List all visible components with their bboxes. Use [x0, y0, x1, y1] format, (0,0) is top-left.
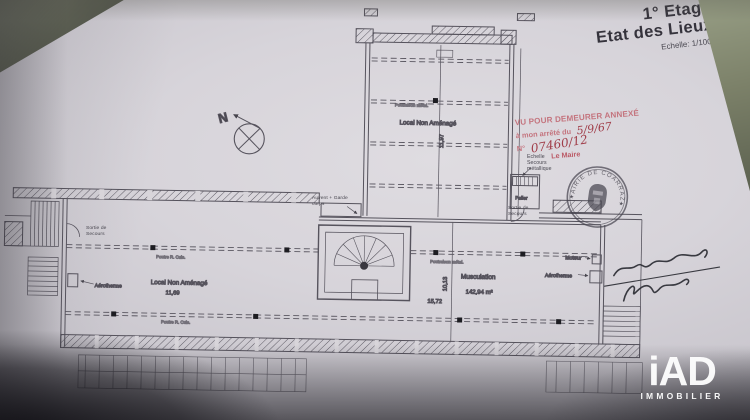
gym-beams: [65, 245, 600, 324]
compass-north-label: N: [217, 109, 230, 126]
main-room-area: 142,94 m²: [466, 290, 493, 296]
floor-plan-photo: N Local Non Aménagé 11,97 Local Non Amén…: [0, 0, 750, 420]
seal-star-left: ★: [569, 193, 575, 201]
central-staircase: [317, 225, 410, 301]
seal-star-right: ★: [618, 200, 624, 208]
heater-left-label: Aérotherme: [95, 283, 122, 289]
exterior-left-stairs: [4, 201, 60, 296]
main-room-width-dim: 15,72: [427, 299, 442, 305]
landing-label: Palier: [515, 195, 528, 201]
exit-left-label: Sortie de Secours: [86, 226, 110, 238]
upper-room-label: Local Non Aménagé: [400, 119, 457, 127]
agency-watermark: iAD IMMOBILIER: [626, 352, 738, 401]
beam-label-1: Poutre R. Cuis.: [156, 254, 185, 260]
left-room-label: Local Non Aménagé: [151, 279, 208, 287]
beam-label-upper: Poutraison métal.: [395, 102, 429, 108]
coat-of-arms-icon: [586, 183, 608, 213]
agency-logo: iAD: [626, 352, 738, 391]
beam-post: [433, 98, 438, 103]
main-room-height-dim: 10,13: [443, 277, 449, 292]
compass: [233, 115, 265, 155]
exterior-lower-stairs: [78, 353, 643, 398]
left-room-dim: 11,69: [166, 290, 180, 296]
canopy-label: Auvent + Garde corps: [312, 196, 352, 208]
mairie-seal: MAIRIE DE COARRAZE ★ ★: [559, 160, 634, 239]
upper-dim: 11,97: [439, 134, 445, 148]
main-room-label: Musculation: [461, 274, 496, 282]
heater-right-label: Aérotherme: [545, 273, 572, 279]
signatures: [596, 233, 733, 317]
upper-building-walls: [353, 9, 535, 221]
beam-label-main: Poutraison métal.: [430, 259, 464, 265]
small-label-box: [437, 50, 453, 57]
exit-upper-label: Sortie de Secours: [508, 206, 531, 218]
agency-logo-subtitle: IMMOBILIER: [626, 391, 738, 401]
motor-label: Moteur: [565, 255, 582, 261]
stamp-number-label: N°: [516, 144, 525, 154]
beam-label-2: Poutre R. Cuis.: [161, 319, 190, 325]
